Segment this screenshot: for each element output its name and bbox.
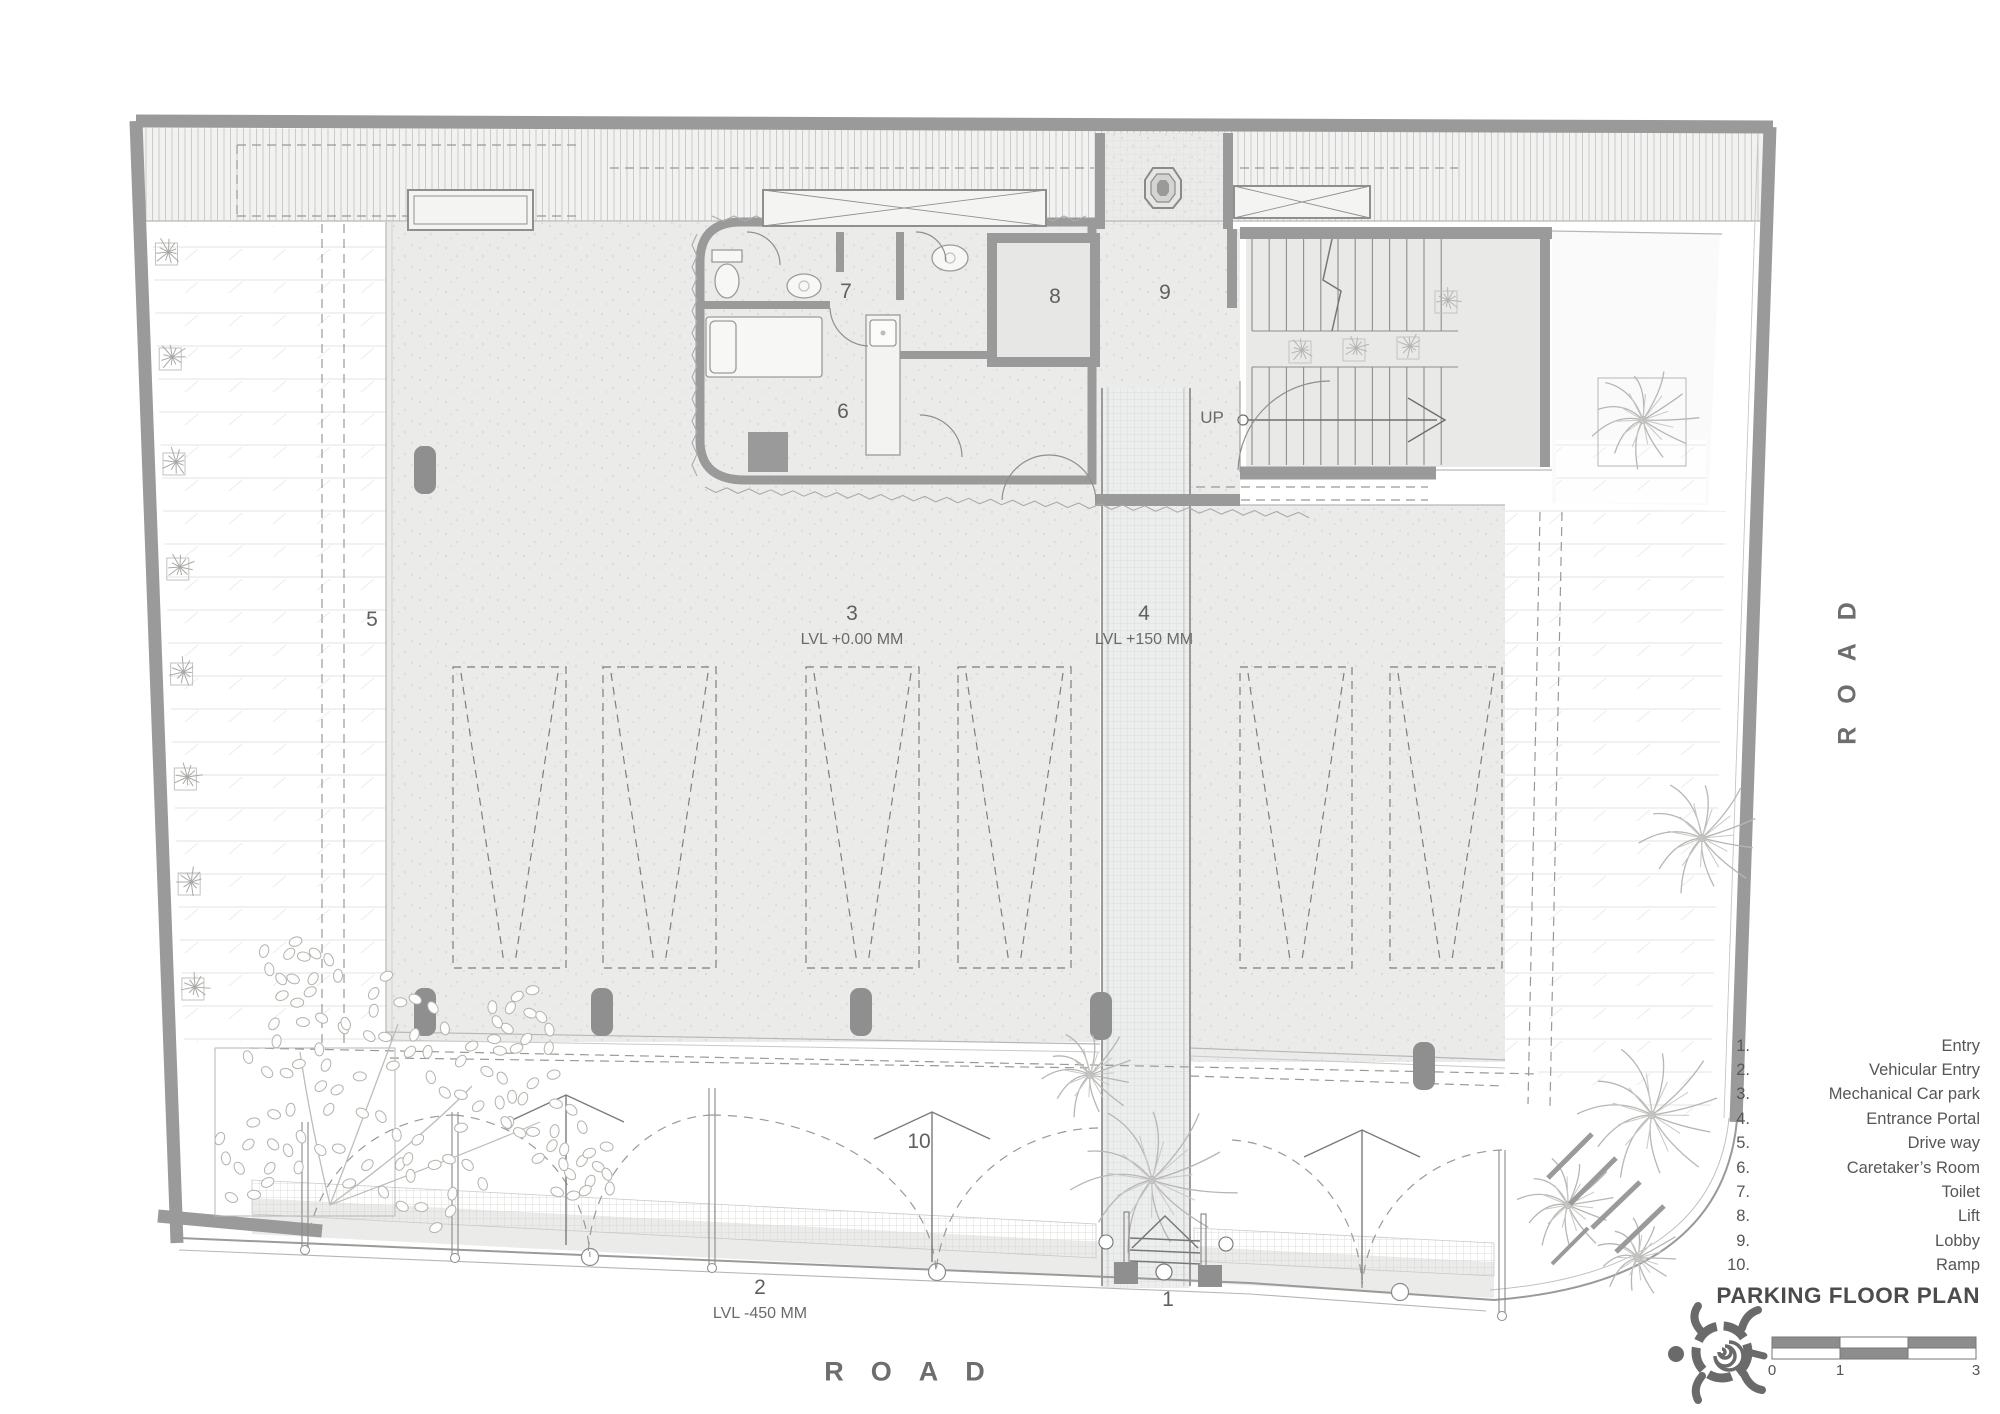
room-label-ramp: 10 (907, 1130, 930, 1154)
scale-tick-0: 0 (1768, 1362, 1776, 1379)
wc-cistern (712, 250, 742, 262)
parking-floor-plan-sheet: 7 8 9 6 5 3 4 10 2 1 LVL +0.00 MM LVL +1… (0, 0, 2000, 1414)
pillow (710, 321, 736, 373)
room-label-caretaker: 6 (837, 400, 849, 424)
level-label-carpark: LVL +0.00 MM (801, 631, 904, 649)
scale-tick-3: 3 (1972, 1362, 1980, 1379)
level-label-vehicular: LVL -450 MM (713, 1305, 807, 1323)
washbasin-2 (932, 245, 968, 271)
level-label-portal: LVL +150 MM (1095, 631, 1193, 649)
legend-item-lift: 8.Lift (1600, 1205, 1980, 1229)
legend-item-caretakers-room: 6.Caretaker’s Room (1600, 1156, 1980, 1180)
road-label-bottom: ROAD (824, 1357, 1012, 1388)
legend-item-entrance-portal: 4.Entrance Portal (1600, 1107, 1980, 1131)
octagon-column (1145, 168, 1181, 208)
room-label-driveway: 5 (366, 608, 378, 632)
legend-item-toilet: 7.Toilet (1600, 1180, 1980, 1204)
legend-item-mechanical-car-park: 3.Mechanical Car park (1600, 1083, 1980, 1107)
room-label-lift: 8 (1049, 285, 1061, 309)
parking-zone-right (1190, 505, 1505, 1062)
room-label-entry: 1 (1162, 1288, 1174, 1312)
wc-toilet (715, 264, 739, 298)
scale-tick-1: 1 (1836, 1362, 1844, 1379)
legend-item-drive-way: 5.Drive way (1600, 1132, 1980, 1156)
legend-item-entry: 1.Entry (1600, 1034, 1980, 1058)
legend-item-vehicular-entry: 2.Vehicular Entry (1600, 1058, 1980, 1082)
washbasin (787, 274, 821, 298)
room-label-lobby: 9 (1159, 281, 1171, 305)
legend-item-ramp: 10.Ramp (1600, 1254, 1980, 1278)
driveway-zone (152, 226, 386, 1042)
drawing-title: PARKING FLOOR PLAN (1540, 1283, 1980, 1309)
room-label-vehicular: 2 (754, 1276, 766, 1300)
room-label-toilet: 7 (840, 280, 852, 304)
studio-logo-turtle (1668, 1306, 1764, 1400)
legend-item-lobby: 9.Lobby (1600, 1229, 1980, 1253)
scale-bar (1772, 1337, 1976, 1359)
up-label: UP (1200, 408, 1224, 428)
stair-zone (1246, 239, 1545, 467)
room-label-carpark: 3 (846, 602, 858, 626)
legend: 1.Entry 2.Vehicular Entry 3.Mechanical C… (1600, 1034, 1980, 1278)
lift-shaft (992, 238, 1095, 362)
road-label-right: ROAD (1834, 579, 1863, 745)
room-label-portal: 4 (1138, 602, 1150, 626)
side-yard-zone (1505, 507, 1726, 1124)
